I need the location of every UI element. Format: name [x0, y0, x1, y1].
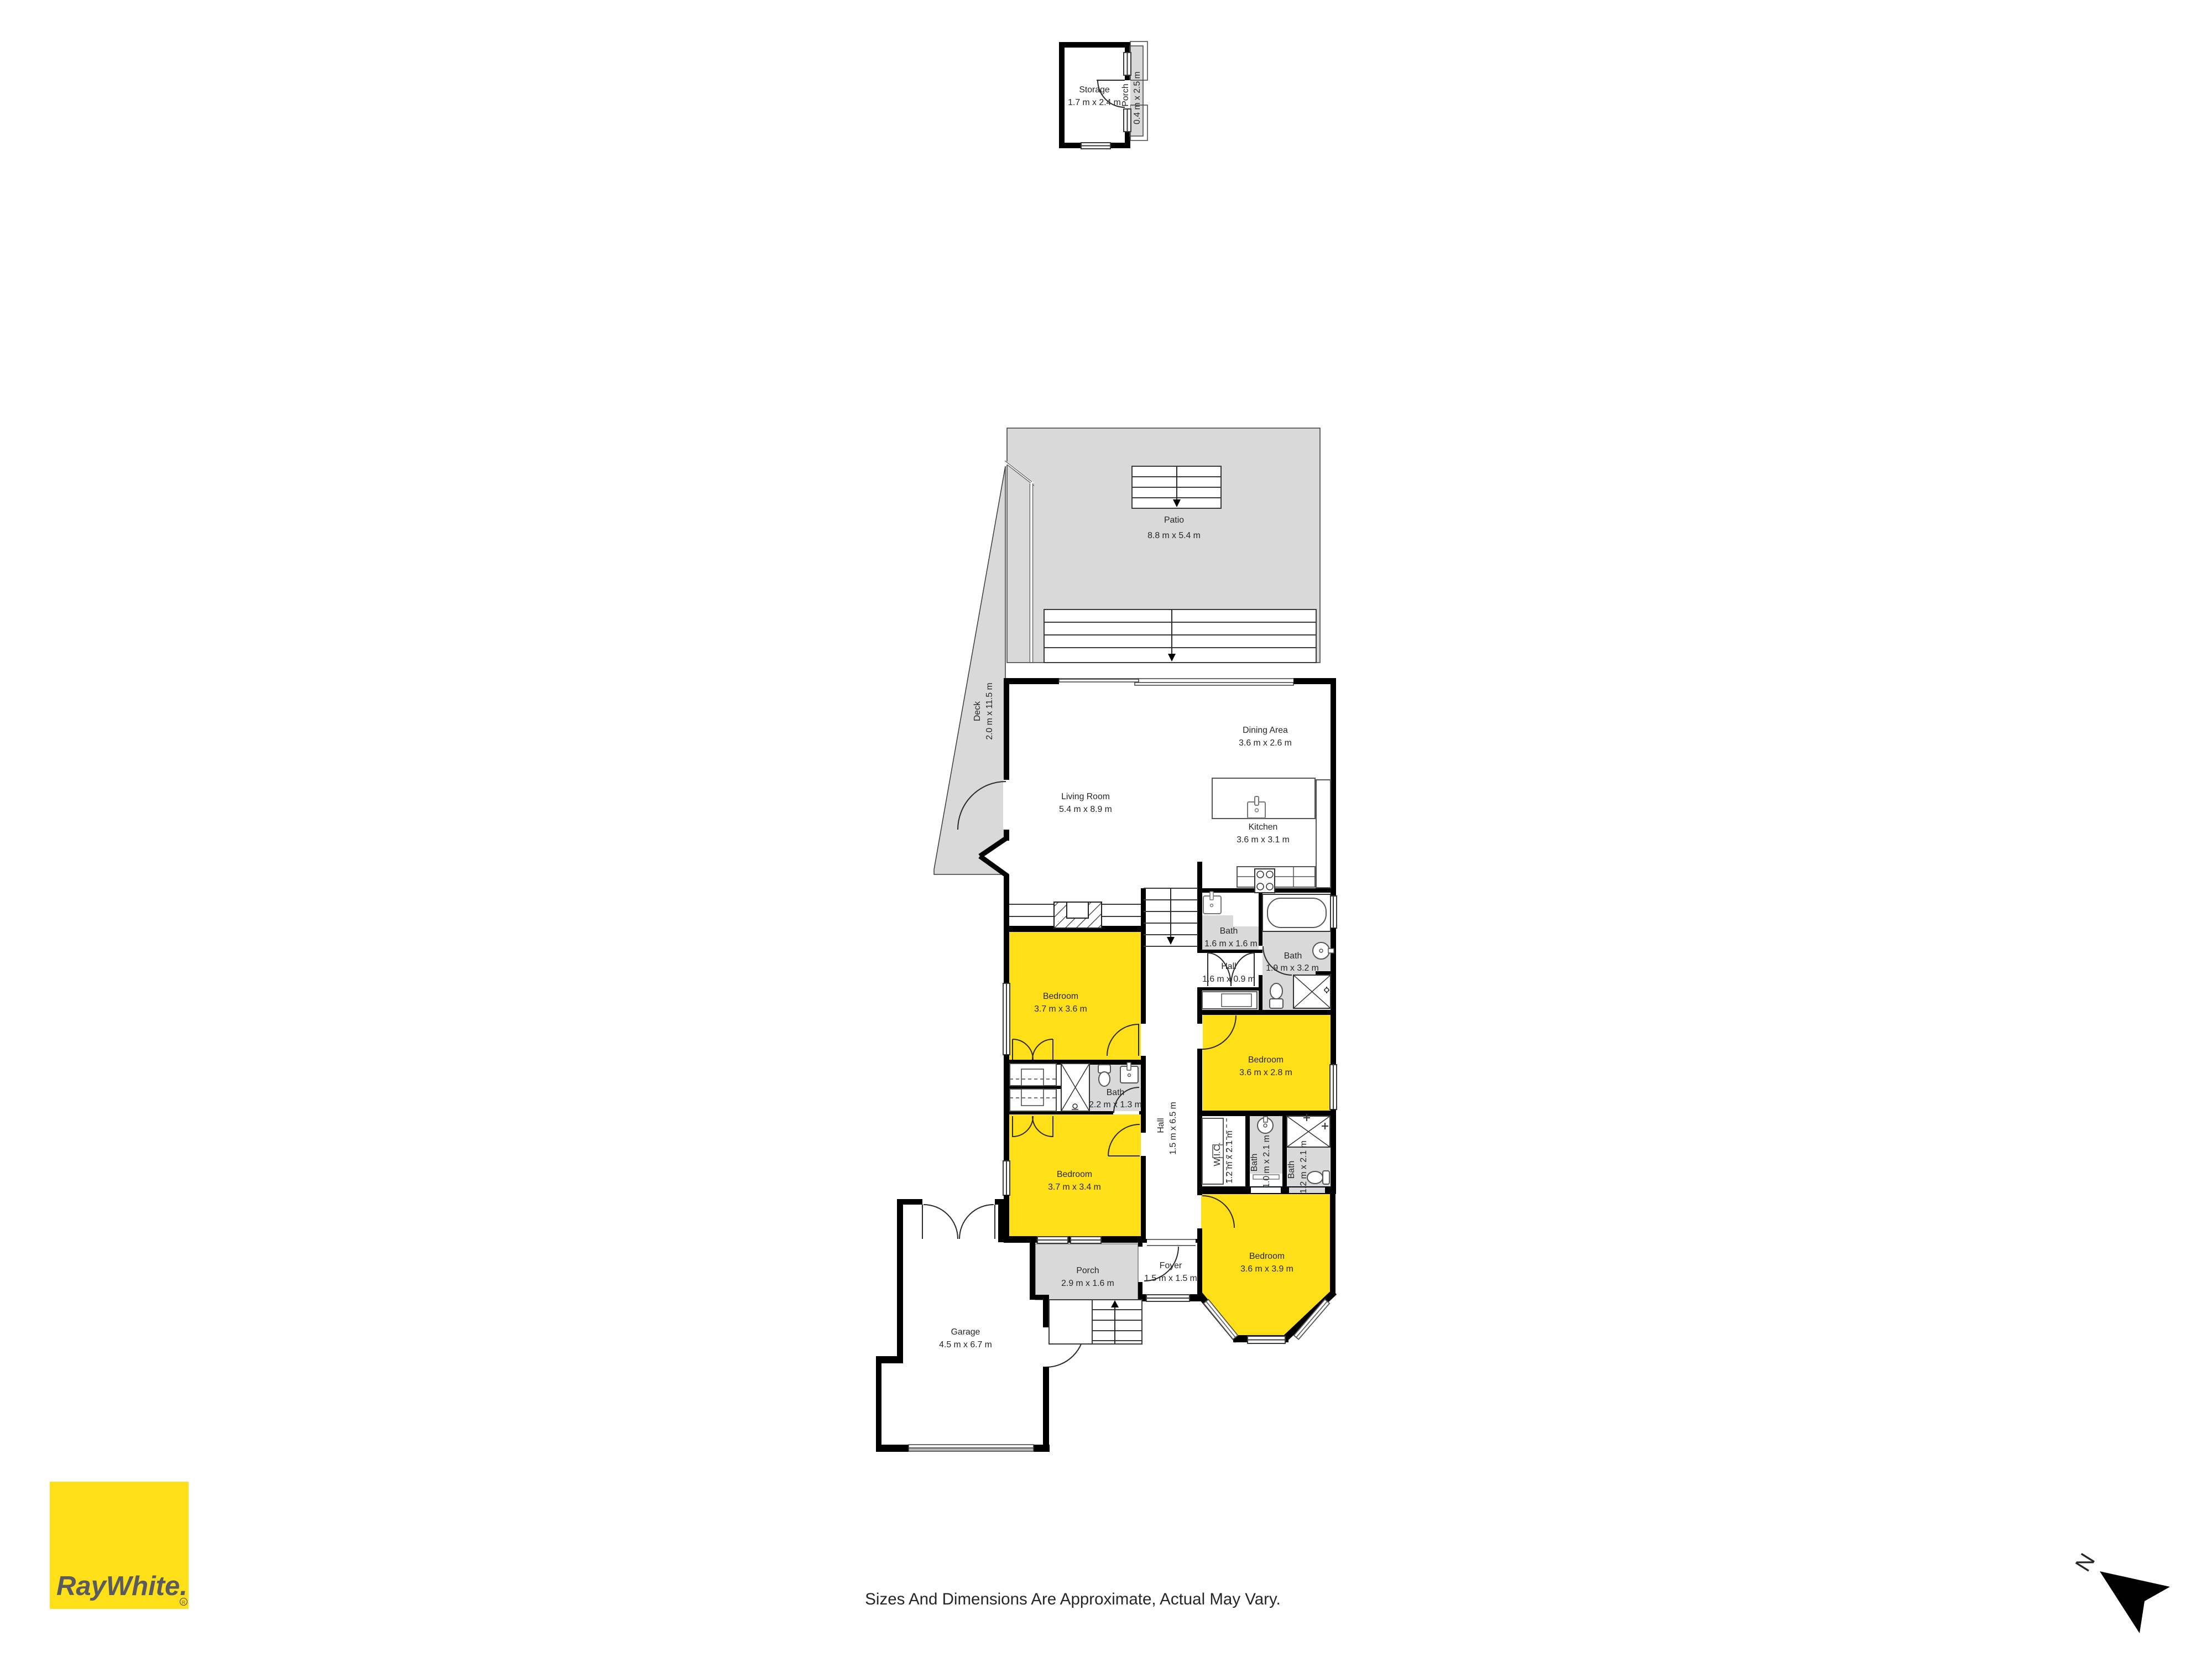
svg-text:Living Room: Living Room: [1061, 792, 1110, 801]
svg-text:0.4 m x 2.5 m: 0.4 m x 2.5 m: [1133, 71, 1142, 124]
svg-text:Bedroom: Bedroom: [1249, 1252, 1285, 1261]
svg-text:1.2 m x 2.1 m: 1.2 m x 2.1 m: [1299, 1140, 1308, 1194]
svg-text:Foyer: Foyer: [1160, 1261, 1182, 1270]
svg-text:8.8 m x 5.4 m: 8.8 m x 5.4 m: [1147, 531, 1201, 540]
svg-text:Bath: Bath: [1284, 951, 1302, 961]
svg-text:Deck: Deck: [973, 701, 982, 721]
svg-text:Bath: Bath: [1287, 1161, 1296, 1179]
svg-text:2.2 m x 1.3 m: 2.2 m x 1.3 m: [1089, 1100, 1142, 1109]
svg-text:RayWhite.: RayWhite.: [56, 1571, 187, 1601]
svg-text:Bath: Bath: [1250, 1154, 1259, 1172]
svg-text:3.6 m x 2.6 m: 3.6 m x 2.6 m: [1239, 738, 1292, 748]
svg-text:1.0 m x 2.1 m: 1.0 m x 2.1 m: [1262, 1135, 1271, 1188]
svg-text:Porch: Porch: [1121, 84, 1130, 106]
svg-text:Bath: Bath: [1220, 926, 1238, 936]
svg-text:3.6 m x 3.9 m: 3.6 m x 3.9 m: [1240, 1264, 1293, 1274]
svg-text:W.I.C.: W.I.C.: [1213, 1142, 1222, 1166]
svg-text:Dining Area: Dining Area: [1243, 726, 1288, 735]
svg-text:Patio: Patio: [1164, 515, 1184, 525]
svg-text:R: R: [182, 1600, 185, 1605]
svg-text:1.7 m x 2.4 m: 1.7 m x 2.4 m: [1068, 98, 1121, 107]
svg-text:1.5 m x 1.5 m: 1.5 m x 1.5 m: [1144, 1274, 1197, 1283]
svg-text:1.6 m x 1.6 m: 1.6 m x 1.6 m: [1204, 939, 1258, 949]
svg-text:Storage: Storage: [1079, 85, 1110, 95]
svg-text:2.9 m x 1.6 m: 2.9 m x 1.6 m: [1061, 1279, 1114, 1288]
svg-text:5.4 m x 8.9 m: 5.4 m x 8.9 m: [1059, 805, 1112, 814]
svg-text:3.6 m x 2.8 m: 3.6 m x 2.8 m: [1239, 1068, 1292, 1077]
svg-text:Garage: Garage: [951, 1327, 980, 1337]
svg-text:Hall: Hall: [1221, 962, 1236, 971]
svg-text:Bedroom: Bedroom: [1248, 1055, 1284, 1065]
svg-text:Hall: Hall: [1156, 1118, 1166, 1133]
svg-text:Kitchen: Kitchen: [1249, 822, 1278, 832]
svg-text:1.2 m x 2.1 m: 1.2 m x 2.1 m: [1225, 1130, 1234, 1184]
svg-text:Bedroom: Bedroom: [1057, 1170, 1092, 1179]
svg-text:3.7 m x 3.4 m: 3.7 m x 3.4 m: [1048, 1182, 1101, 1192]
svg-text:4.5 m x 6.7 m: 4.5 m x 6.7 m: [939, 1340, 992, 1350]
svg-text:1.6 m x 0.9 m: 1.6 m x 0.9 m: [1202, 975, 1255, 984]
svg-text:3.7 m x 3.6 m: 3.7 m x 3.6 m: [1034, 1004, 1087, 1014]
svg-text:Bedroom: Bedroom: [1043, 992, 1078, 1001]
svg-text:Porch: Porch: [1076, 1266, 1099, 1275]
svg-text:Bath: Bath: [1107, 1088, 1125, 1097]
svg-text:2.0 m x 11.5 m: 2.0 m x 11.5 m: [985, 682, 994, 739]
svg-text:1.5 m x 6.5 m: 1.5 m x 6.5 m: [1168, 1102, 1178, 1155]
svg-text:3.6 m x 3.1 m: 3.6 m x 3.1 m: [1237, 835, 1290, 845]
svg-text:Sizes And Dimensions Are Appro: Sizes And Dimensions Are Approximate, Ac…: [865, 1590, 1281, 1608]
svg-text:1.9 m x 3.2 m: 1.9 m x 3.2 m: [1266, 963, 1319, 973]
